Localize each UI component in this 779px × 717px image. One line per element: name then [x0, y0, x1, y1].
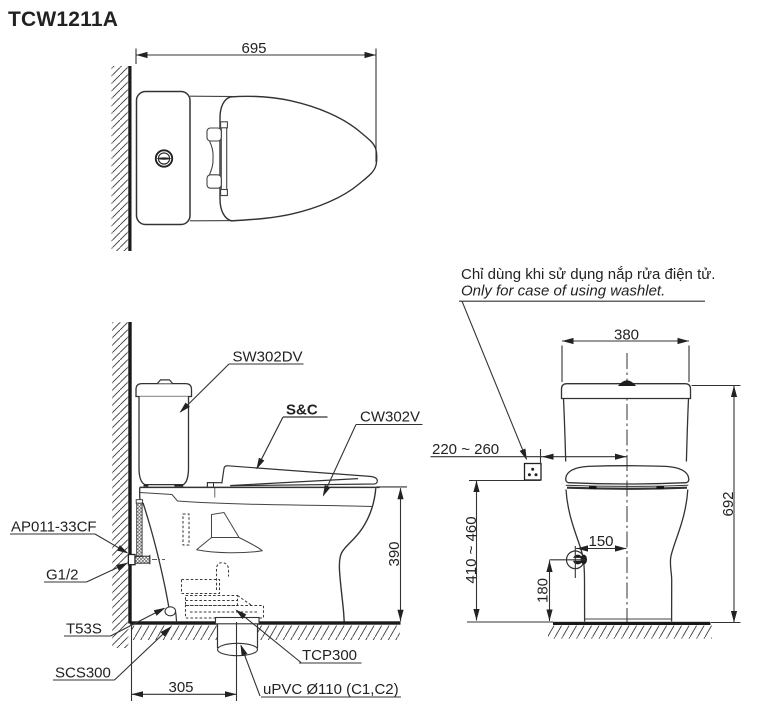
svg-text:180: 180 — [535, 578, 552, 603]
svg-text:Only for case of using washlet: Only for case of using washlet. — [461, 283, 665, 300]
svg-text:T53S: T53S — [66, 621, 102, 638]
svg-text:692: 692 — [720, 491, 737, 516]
svg-text:410 ~ 460: 410 ~ 460 — [463, 516, 480, 583]
svg-text:TCP300: TCP300 — [302, 647, 357, 664]
svg-text:uPVC Ø110 (C1,C2): uPVC Ø110 (C1,C2) — [263, 681, 399, 698]
svg-text:AP011-33CF: AP011-33CF — [11, 519, 97, 536]
svg-text:SW302DV: SW302DV — [233, 349, 303, 366]
svg-text:G1/2: G1/2 — [46, 567, 79, 584]
svg-text:220 ~ 260: 220 ~ 260 — [432, 441, 499, 458]
svg-text:380: 380 — [614, 327, 639, 344]
svg-text:Chỉ dùng khi sử dụng nắp rửa đ: Chỉ dùng khi sử dụng nắp rửa điện tử. — [461, 266, 715, 283]
svg-text:390: 390 — [386, 541, 403, 566]
svg-text:S&C: S&C — [286, 402, 318, 419]
svg-text:150: 150 — [588, 533, 613, 550]
svg-text:TCW1211A: TCW1211A — [8, 8, 118, 31]
svg-text:695: 695 — [241, 40, 266, 57]
svg-text:SCS300: SCS300 — [55, 665, 111, 682]
svg-text:CW302V: CW302V — [360, 409, 420, 426]
svg-text:305: 305 — [168, 679, 193, 696]
